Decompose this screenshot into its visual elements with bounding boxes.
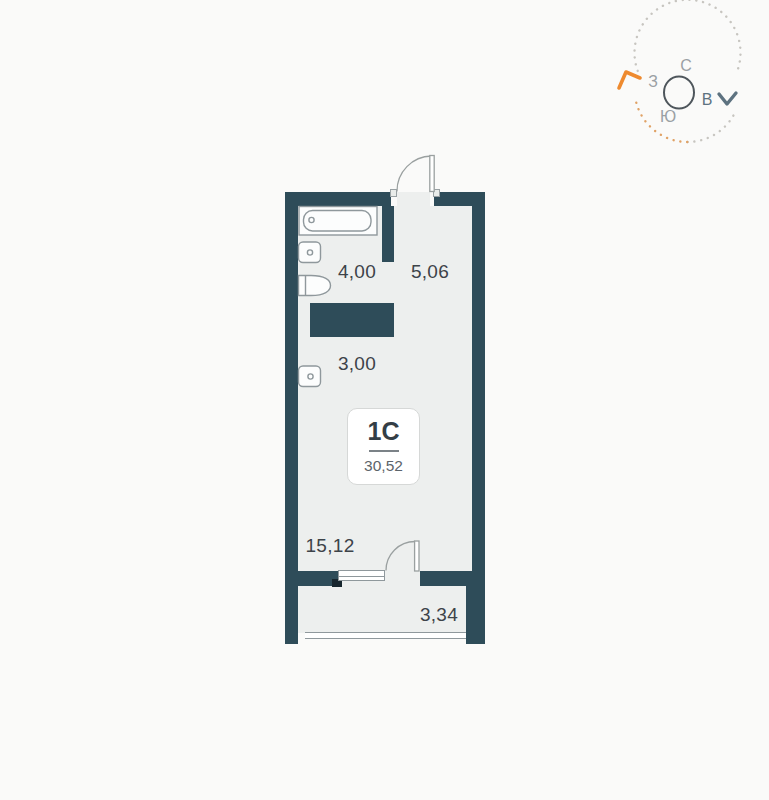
unit-type-label: 1С xyxy=(368,418,400,446)
bathroom-sink-body xyxy=(299,242,321,263)
balcony-door xyxy=(386,541,419,571)
toilet xyxy=(299,276,331,296)
bathroom-area-label: 4,00 xyxy=(338,261,376,283)
rotate-ccw-arrow[interactable] xyxy=(619,72,640,88)
plan-graphics: С З В Ю xyxy=(0,0,769,800)
compass-ring-gray-bottom xyxy=(688,116,734,143)
compass: С З В Ю xyxy=(619,0,741,142)
balcony-area-label: 3,34 xyxy=(420,604,458,626)
unit-info-card: 1С 30,52 xyxy=(347,408,420,485)
balcony-door-leaf xyxy=(415,541,419,571)
bathroom-sink xyxy=(299,242,321,263)
toilet-bowl xyxy=(299,276,331,296)
bathtub xyxy=(299,207,377,236)
hallway-area-label: 5,06 xyxy=(411,261,449,283)
unit-total-area: 30,52 xyxy=(364,457,403,475)
kitchen-sink-body xyxy=(299,366,321,387)
compass-circle xyxy=(664,77,694,109)
kitchen-niche-area-label: 3,00 xyxy=(338,353,376,375)
kitchen-sink xyxy=(299,366,321,387)
compass-west-label: З xyxy=(648,73,658,90)
compass-south-label: Ю xyxy=(660,108,676,125)
entrance-door-leaf xyxy=(430,156,434,192)
floorplan-canvas: С З В Ю 4,00 5,06 3,00 15,12 3,34 1С 30,… xyxy=(0,0,769,800)
rotate-cw-arrow[interactable] xyxy=(719,93,736,104)
entrance-door-arc xyxy=(397,156,432,192)
compass-east-label: В xyxy=(702,91,713,108)
living-room-area-label: 15,12 xyxy=(305,535,354,557)
entrance-door xyxy=(397,156,434,192)
compass-north-label: С xyxy=(680,57,692,74)
balcony-door-arc xyxy=(386,542,415,571)
unit-card-divider xyxy=(369,450,399,452)
